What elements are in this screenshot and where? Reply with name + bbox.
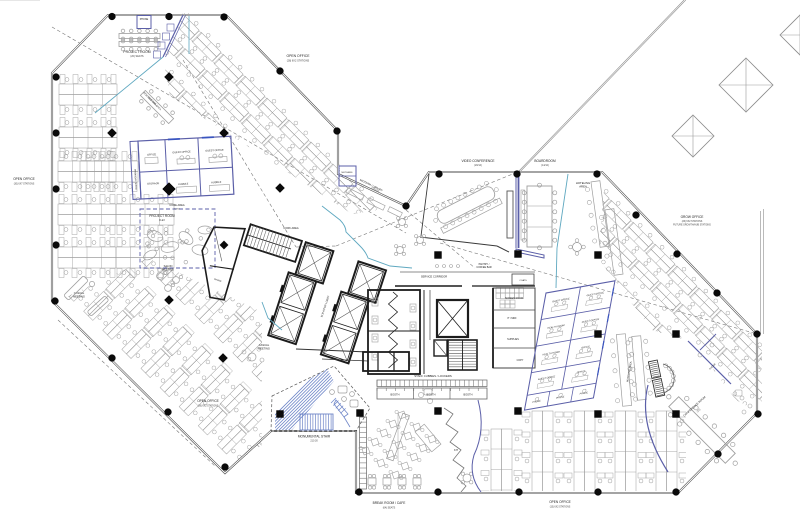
svg-text:HUDDLE: HUDDLE — [211, 181, 222, 185]
svg-text:CORK AREA: CORK AREA — [283, 226, 298, 230]
svg-text:FLEX: FLEX — [159, 219, 165, 222]
svg-text:210.30: 210.30 — [310, 440, 318, 443]
svg-text:MEETING: MEETING — [73, 295, 85, 299]
svg-text:STAFF CUBBIES / LOCKERS: STAFF CUBBIES / LOCKERS — [414, 374, 452, 378]
svg-text:BREAK ROOM / CAFE: BREAK ROOM / CAFE — [373, 501, 406, 505]
svg-text:(30) 6X7 STATIONS: (30) 6X7 STATIONS — [14, 183, 35, 186]
svg-text:COPY: COPY — [517, 359, 524, 362]
svg-text:BOOTH: BOOTH — [427, 394, 436, 397]
svg-text:KIT: KIT — [454, 448, 458, 452]
svg-text:OPEN OFFICE: OPEN OFFICE — [549, 500, 571, 504]
svg-text:IT / MDF: IT / MDF — [507, 317, 517, 320]
svg-text:(15) 6X2 STATIONS: (15) 6X2 STATIONS — [550, 506, 571, 509]
svg-text:OFFICE: OFFICE — [147, 153, 157, 156]
svg-text:AREA: AREA — [579, 185, 587, 189]
svg-text:HUDDLE: HUDDLE — [178, 183, 189, 187]
svg-text:SCREEN ROOM: SCREEN ROOM — [505, 297, 523, 300]
svg-text:(26) 6X2 STATIONS: (26) 6X2 STATIONS — [682, 220, 703, 223]
svg-text:MEETING: MEETING — [162, 268, 174, 272]
svg-text:FUTURE GROWTH/HUB STATIONS: FUTURE GROWTH/HUB STATIONS — [673, 224, 711, 227]
svg-text:PHONE: PHONE — [140, 18, 149, 21]
svg-text:SALON: SALON — [164, 264, 173, 268]
svg-text:SERVICE CORRIDOR: SERVICE CORRIDOR — [421, 275, 447, 279]
svg-text:MONUMENTAL STAIR: MONUMENTAL STAIR — [298, 435, 331, 439]
svg-text:6,760: 6,760 — [174, 209, 180, 211]
svg-text:CORE AREA: CORE AREA — [169, 203, 184, 207]
svg-text:(28) 6X2 STATIONS: (28) 6X2 STATIONS — [287, 60, 310, 63]
svg-text:BOOTH: BOOTH — [391, 394, 400, 397]
svg-text:MEETING: MEETING — [258, 347, 270, 351]
svg-text:COATS: COATS — [519, 279, 527, 282]
svg-text:BOOTH: BOOTH — [464, 394, 473, 397]
svg-text:PROJECT ROOM: PROJECT ROOM — [149, 214, 175, 218]
svg-text:SUPPLIES: SUPPLIES — [507, 338, 519, 341]
svg-text:PROJECT ROOM: PROJECT ROOM — [123, 50, 150, 54]
svg-text:GROW OFFICE: GROW OFFICE — [681, 215, 704, 219]
svg-text:(64) SEATS: (64) SEATS — [383, 507, 396, 510]
svg-text:(20) SEATS: (20) SEATS — [130, 55, 143, 58]
svg-text:OPEN OFFICE: OPEN OFFICE — [287, 54, 311, 58]
svg-text:MOTHERS: MOTHERS — [342, 172, 353, 174]
svg-text:(20/14): (20/14) — [474, 164, 482, 167]
svg-text:CASUAL: CASUAL — [259, 343, 270, 347]
svg-text:VIDEO CONFERENCE: VIDEO CONFERENCE — [461, 159, 494, 163]
svg-text:OPEN OFFICE: OPEN OFFICE — [197, 399, 219, 403]
svg-text:COFFEE BAR: COFFEE BAR — [476, 266, 492, 269]
svg-text:(36) 6X2 STATIONS: (36) 6X2 STATIONS — [198, 405, 219, 408]
svg-text:(14/12): (14/12) — [541, 164, 549, 167]
svg-text:OPEN OFFICE: OPEN OFFICE — [13, 177, 35, 181]
svg-text:BOARDROOM: BOARDROOM — [534, 159, 556, 163]
